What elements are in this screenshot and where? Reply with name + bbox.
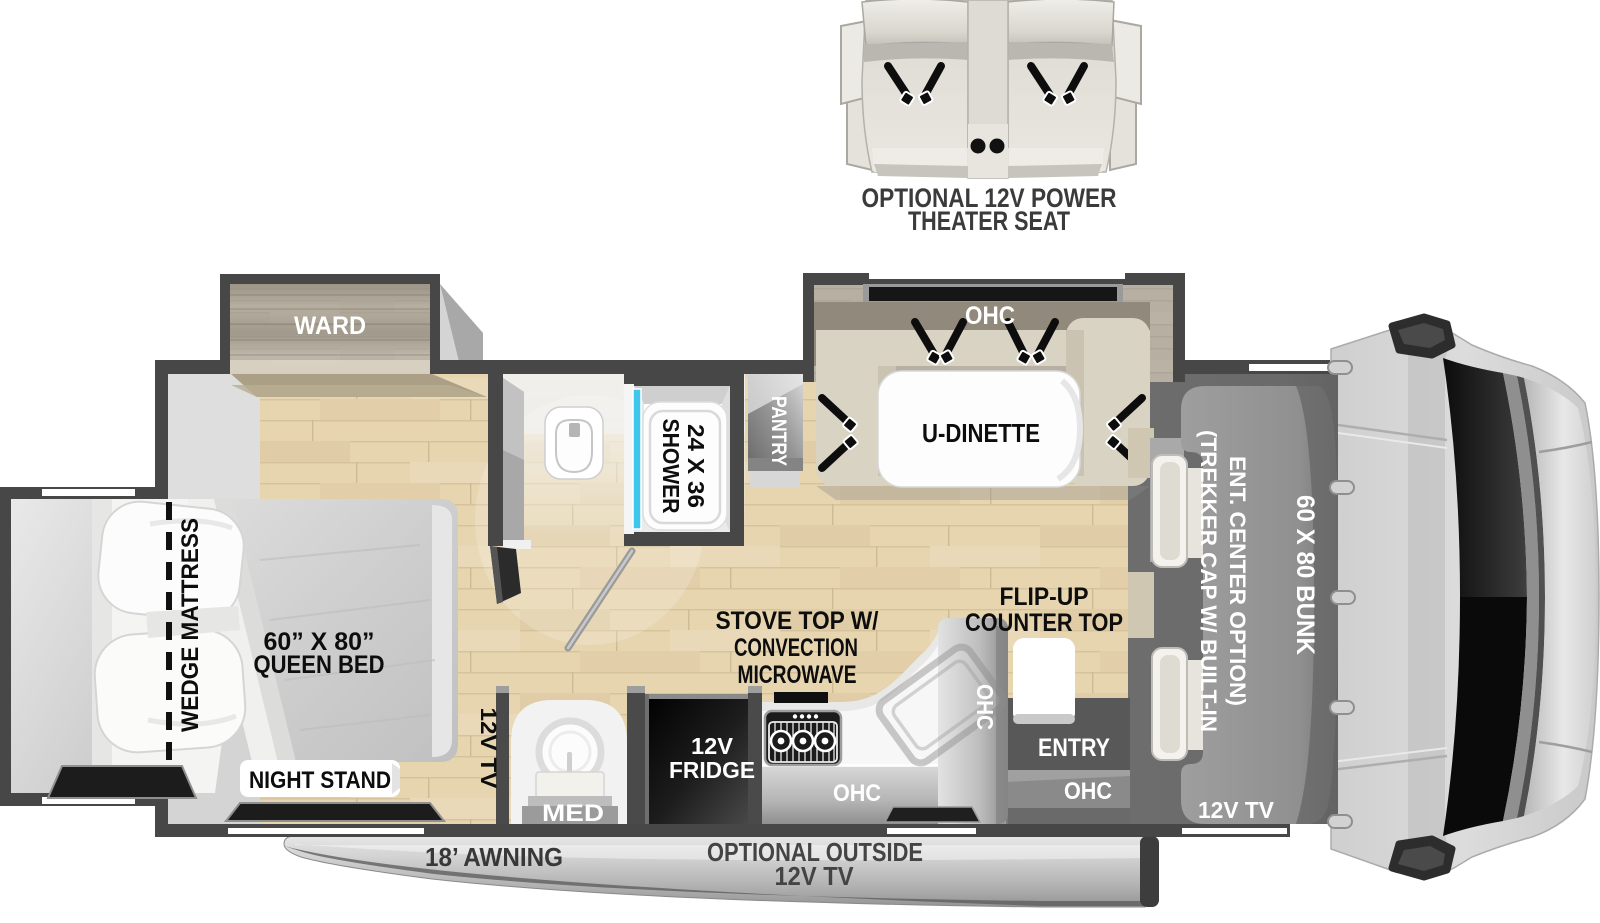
svg-text:OHC: OHC — [972, 684, 998, 730]
svg-text:18’ AWNING: 18’ AWNING — [425, 842, 563, 872]
svg-text:PANTRY: PANTRY — [767, 396, 790, 466]
svg-text:THEATER SEAT: THEATER SEAT — [908, 206, 1070, 236]
svg-text:MED: MED — [542, 800, 604, 827]
svg-text:COUNTER TOP: COUNTER TOP — [965, 609, 1123, 637]
svg-text:ENTRY: ENTRY — [1038, 734, 1110, 762]
svg-text:12V TV: 12V TV — [1198, 797, 1275, 823]
svg-text:24 X 36: 24 X 36 — [683, 424, 709, 508]
svg-text:SHOWER: SHOWER — [658, 419, 684, 514]
svg-text:12V TV: 12V TV — [775, 861, 855, 891]
svg-text:FRIDGE: FRIDGE — [669, 757, 755, 783]
svg-text:60 X 80 BUNK: 60 X 80 BUNK — [1291, 495, 1319, 655]
svg-text:STOVE TOP W/: STOVE TOP W/ — [716, 607, 879, 635]
svg-text:12V: 12V — [691, 733, 734, 759]
svg-text:OHC: OHC — [1064, 778, 1112, 805]
svg-text:MICROWAVE: MICROWAVE — [738, 661, 857, 689]
svg-text:WEDGE MATTRESS: WEDGE MATTRESS — [177, 518, 204, 732]
svg-text:FLIP-UP: FLIP-UP — [1000, 583, 1089, 611]
svg-text:ENT. CENTER OPTION): ENT. CENTER OPTION) — [1225, 456, 1250, 706]
svg-text:OHC: OHC — [965, 302, 1015, 330]
svg-text:NIGHT STAND: NIGHT STAND — [249, 767, 391, 794]
svg-text:U-DINETTE: U-DINETTE — [922, 418, 1040, 448]
svg-text:(TREKKER CAP W/ BUILT-IN: (TREKKER CAP W/ BUILT-IN — [1196, 430, 1221, 732]
svg-text:OHC: OHC — [833, 780, 881, 807]
svg-text:12V TV: 12V TV — [476, 708, 501, 789]
svg-text:WARD: WARD — [294, 312, 366, 340]
svg-text:CONVECTION: CONVECTION — [734, 634, 858, 662]
svg-text:QUEEN BED: QUEEN BED — [254, 651, 385, 679]
